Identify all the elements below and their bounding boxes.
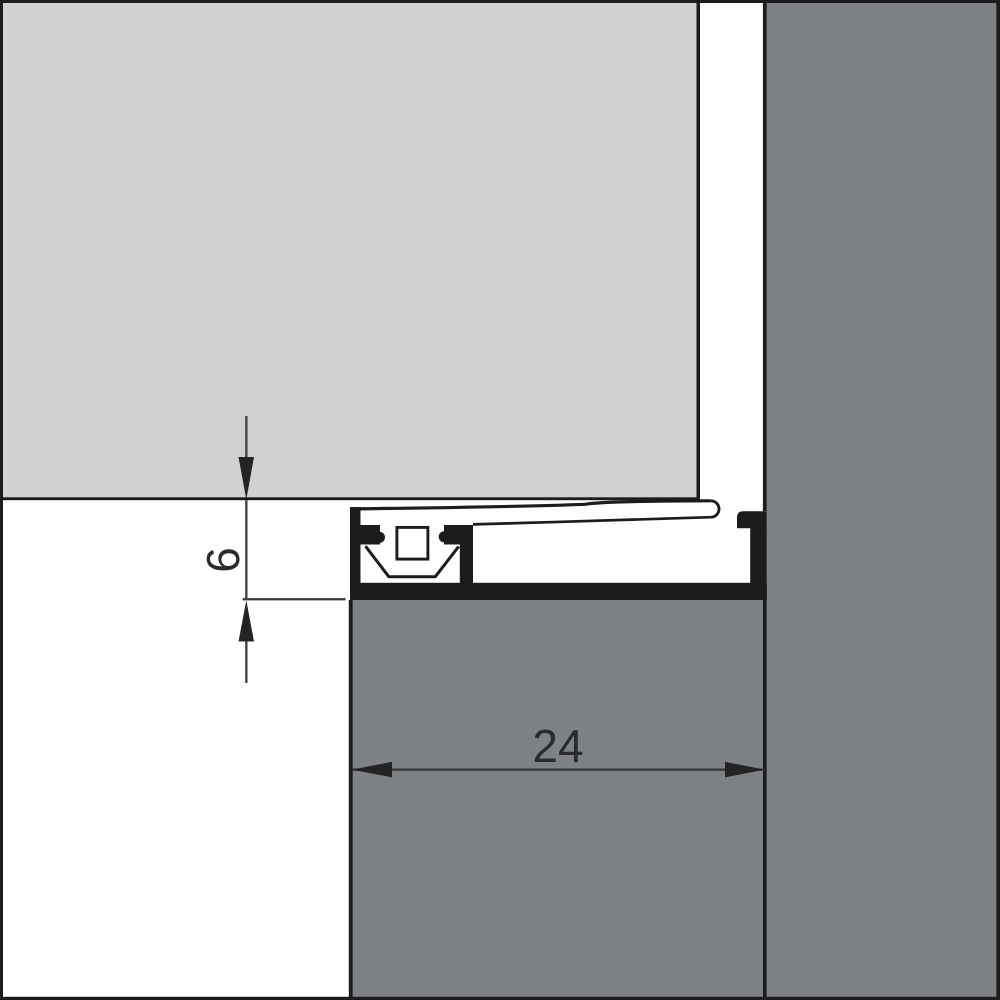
svg-text:6: 6: [197, 547, 249, 573]
svg-text:24: 24: [532, 720, 583, 772]
